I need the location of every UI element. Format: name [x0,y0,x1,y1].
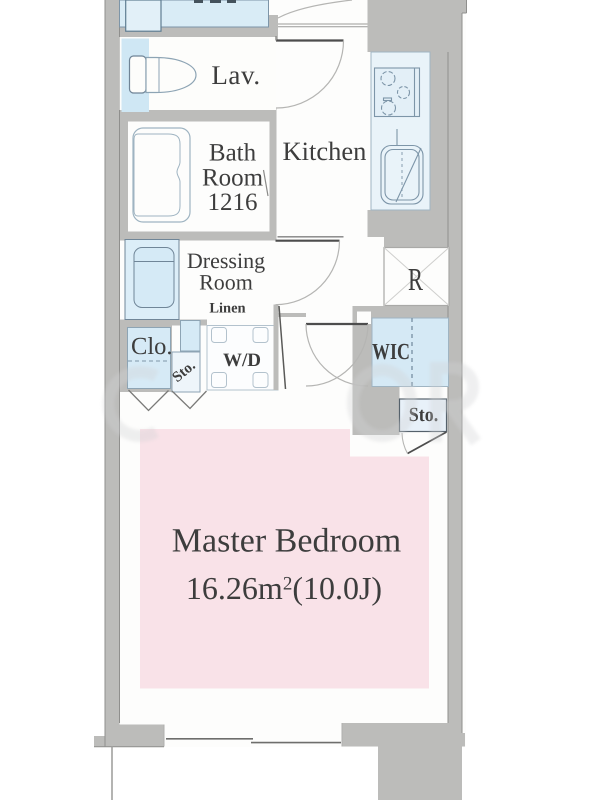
svg-text:WIC: WIC [372,339,410,364]
svg-text:R: R [408,261,423,297]
svg-text:Bath: Bath [209,140,257,167]
svg-text:Kitchen: Kitchen [283,136,367,166]
svg-text:W/D: W/D [223,350,261,371]
svg-text:Master Bedroom: Master Bedroom [172,523,401,560]
svg-text:Lav.: Lav. [211,60,260,90]
svg-text:1216: 1216 [208,189,258,216]
svg-text:Clo.: Clo. [131,333,173,360]
svg-text:Room: Room [202,165,264,192]
svg-text:Linen: Linen [209,301,245,317]
svg-text:Room: Room [199,270,253,295]
